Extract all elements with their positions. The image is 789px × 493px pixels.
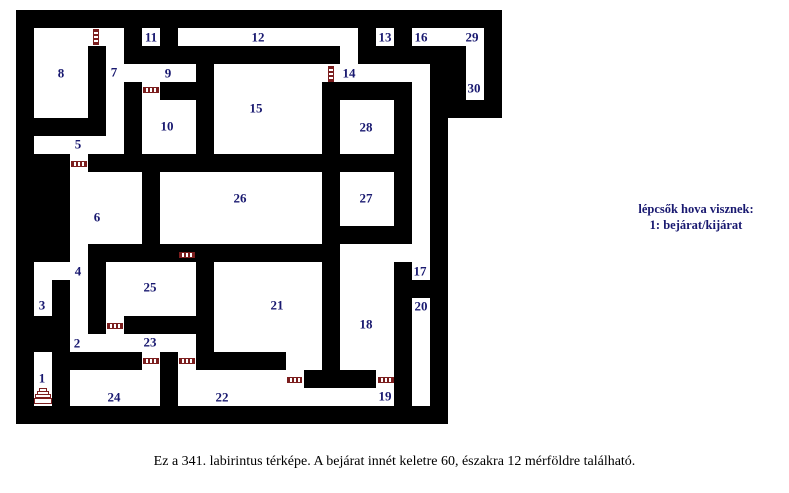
room-20	[412, 298, 430, 406]
stairs-legend: lépcsők hova visznek: 1: bejárat/kijárat	[601, 201, 789, 234]
room-label-16: 16	[415, 31, 428, 44]
room-label-19: 19	[379, 390, 392, 403]
corridor-12	[178, 28, 358, 46]
legend-entry-1: 1: bejárat/kijárat	[601, 217, 789, 233]
room-label-2: 2	[74, 337, 81, 350]
legend-title: lépcsők hova visznek:	[601, 201, 789, 217]
corridor-7	[106, 28, 124, 154]
door-icon	[179, 358, 195, 364]
room-22	[178, 370, 286, 406]
doorway-21-19a	[286, 352, 322, 370]
maze-map: 1234567891011121314151617181920212223242…	[0, 0, 540, 440]
room-label-23: 23	[144, 336, 157, 349]
room-label-18: 18	[360, 318, 373, 331]
door-icon	[287, 377, 302, 383]
door-icon	[143, 87, 159, 93]
room-label-27: 27	[360, 192, 373, 205]
room-label-17: 17	[414, 265, 427, 278]
page: 1234567891011121314151617181920212223242…	[0, 0, 789, 493]
room-label-12: 12	[252, 31, 265, 44]
room-label-4: 4	[75, 265, 82, 278]
room-label-22: 22	[216, 391, 229, 404]
corridor-23	[70, 334, 196, 352]
corridor-9	[106, 64, 196, 82]
map-caption: Ez a 341. labirintus térképe. A bejárat …	[0, 454, 789, 471]
room-21	[214, 262, 322, 352]
room-label-6: 6	[94, 211, 101, 224]
door-icon	[378, 377, 394, 383]
corridor-27-18	[340, 244, 430, 262]
room-26	[160, 172, 322, 244]
room-label-26: 26	[234, 192, 247, 205]
stairs-step	[34, 398, 52, 404]
room-label-28: 28	[360, 121, 373, 134]
door-icon	[143, 358, 159, 364]
corridor-14	[322, 64, 430, 82]
room-5-strip	[34, 136, 106, 154]
door-icon	[107, 323, 123, 329]
room-label-10: 10	[161, 120, 174, 133]
room-label-15: 15	[250, 102, 263, 115]
door-icon	[93, 29, 99, 45]
room-label-21: 21	[271, 299, 284, 312]
room-label-30: 30	[468, 82, 481, 95]
room-15	[214, 64, 322, 154]
room-label-14: 14	[343, 67, 356, 80]
room-label-1: 1	[39, 372, 46, 385]
room-label-13: 13	[379, 31, 392, 44]
door-icon	[328, 66, 334, 82]
room-label-25: 25	[144, 281, 157, 294]
room-6	[70, 172, 142, 244]
room-label-5: 5	[75, 138, 82, 151]
room-label-8: 8	[58, 67, 65, 80]
room-label-7: 7	[111, 66, 118, 79]
room-label-9: 9	[165, 67, 172, 80]
room-label-29: 29	[466, 31, 479, 44]
corridor-12-turn	[340, 46, 358, 64]
room-label-3: 3	[39, 299, 46, 312]
door-icon	[71, 161, 87, 167]
room-label-20: 20	[415, 300, 428, 313]
stairs-icon	[34, 388, 52, 406]
door-icon	[179, 252, 195, 258]
room-label-24: 24	[108, 391, 121, 404]
room-label-11: 11	[145, 31, 157, 44]
